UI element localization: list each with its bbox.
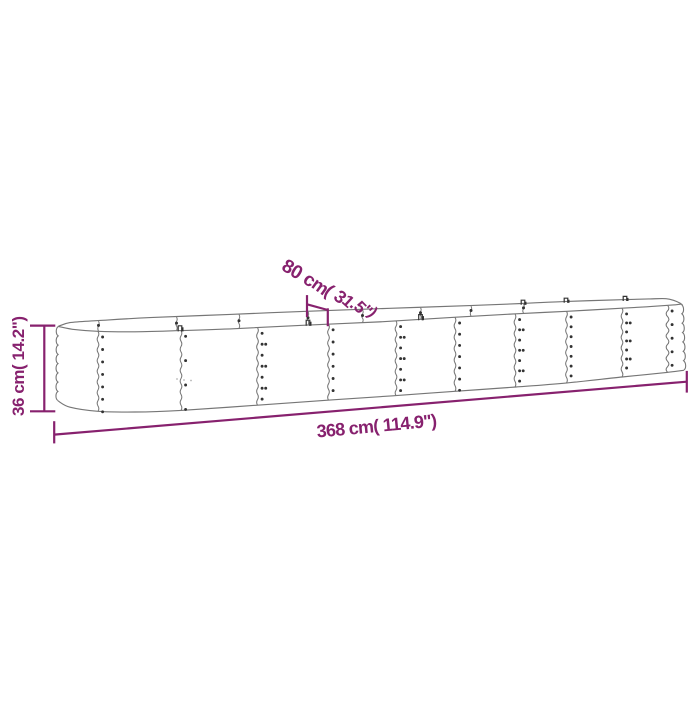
svg-text:36 cm( 14.2"): 36 cm( 14.2") bbox=[9, 316, 28, 416]
